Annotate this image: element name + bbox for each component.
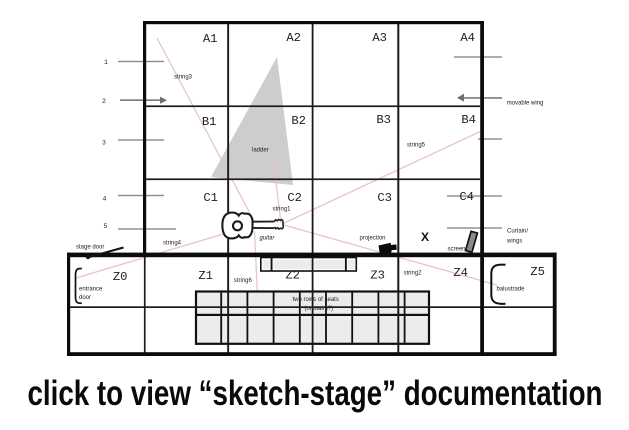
svg-text:projection: projection <box>360 235 386 241</box>
svg-text:movable wing: movable wing <box>507 101 544 107</box>
svg-text:A4: A4 <box>460 31 475 45</box>
svg-text:guitar: guitar <box>260 235 276 241</box>
svg-text:4: 4 <box>103 195 107 202</box>
svg-text:1: 1 <box>104 59 108 66</box>
svg-text:5: 5 <box>103 223 107 230</box>
svg-text:door: door <box>79 295 91 301</box>
svg-text:B1: B1 <box>202 115 217 129</box>
svg-text:entrance: entrance <box>79 287 103 293</box>
svg-text:Z5: Z5 <box>530 265 545 279</box>
svg-text:Z2: Z2 <box>285 269 300 283</box>
svg-text:C1: C1 <box>203 191 218 205</box>
svg-text:C4: C4 <box>459 190 474 204</box>
svg-text:A1: A1 <box>203 32 218 46</box>
svg-text:Curtain/: Curtain/ <box>507 229 528 235</box>
svg-text:Z4: Z4 <box>453 266 468 280</box>
svg-text:Z3: Z3 <box>370 269 385 283</box>
svg-text:balustrade: balustrade <box>497 287 526 293</box>
svg-text:C2: C2 <box>287 191 302 205</box>
svg-text:2: 2 <box>102 98 106 105</box>
svg-text:Z1: Z1 <box>198 269 213 283</box>
svg-text:string5: string5 <box>407 143 426 149</box>
svg-text:string2: string2 <box>404 271 423 277</box>
svg-text:A3: A3 <box>372 31 387 45</box>
svg-text:string3: string3 <box>174 75 193 81</box>
svg-text:stage door: stage door <box>76 245 104 251</box>
svg-text:C3: C3 <box>377 191 392 205</box>
svg-text:A2: A2 <box>286 31 301 45</box>
svg-text:Z0: Z0 <box>113 270 128 284</box>
svg-text:string4: string4 <box>163 241 182 247</box>
svg-text:(or stairs?): (or stairs?) <box>305 306 334 312</box>
svg-text:string6: string6 <box>234 278 253 284</box>
svg-text:two rows of seats: two rows of seats <box>293 297 339 303</box>
svg-text:3: 3 <box>102 139 106 146</box>
svg-text:B2: B2 <box>291 114 306 128</box>
svg-text:ladder: ladder <box>252 148 269 154</box>
svg-text:B4: B4 <box>461 113 476 127</box>
svg-text:wings: wings <box>506 239 522 245</box>
svg-text:string1: string1 <box>273 207 292 213</box>
svg-text:X: X <box>421 230 429 244</box>
svg-text:B3: B3 <box>376 113 391 127</box>
svg-text:screen: screen <box>448 247 466 253</box>
